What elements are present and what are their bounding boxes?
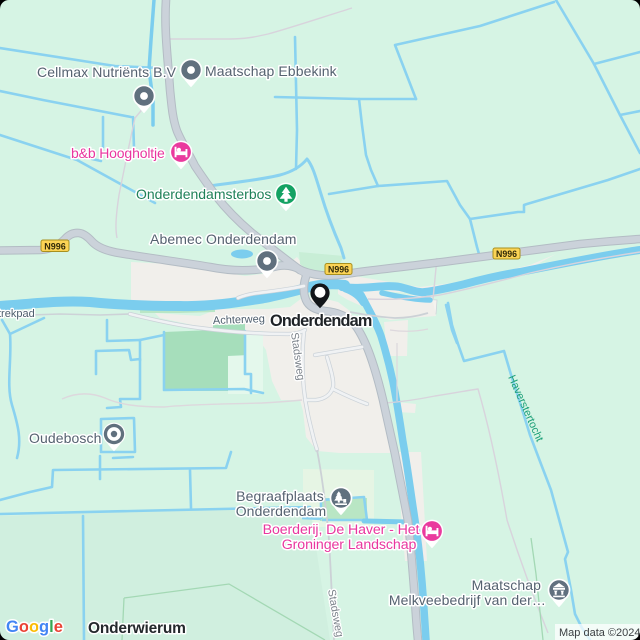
svg-text:Maatschap: Maatschap xyxy=(472,577,541,593)
svg-text:Abemec Onderdendam: Abemec Onderdendam xyxy=(150,231,297,247)
svg-text:Groninger Landschap: Groninger Landschap xyxy=(282,537,417,553)
svg-text:Onderdendam: Onderdendam xyxy=(236,503,327,519)
svg-text:b&b Hoogholtje: b&b Hoogholtje xyxy=(71,145,165,161)
svg-text:N996: N996 xyxy=(496,249,517,259)
svg-text:Cellmax Nutriënts B.V: Cellmax Nutriënts B.V xyxy=(37,64,177,80)
svg-text:Maatschap Ebbekink: Maatschap Ebbekink xyxy=(205,63,338,79)
svg-text:Begraafplaats: Begraafplaats xyxy=(236,488,324,504)
svg-text:N996: N996 xyxy=(328,264,349,274)
svg-text:Google: Google xyxy=(6,618,63,636)
svg-text:trekpad: trekpad xyxy=(0,308,35,320)
svg-text:Map data ©2024: Map data ©2024 xyxy=(559,627,640,639)
svg-text:Achterweg: Achterweg xyxy=(213,313,265,327)
svg-text:N996: N996 xyxy=(44,241,66,251)
svg-text:Boerderij, De Haver - Het: Boerderij, De Haver - Het xyxy=(263,522,420,538)
svg-text:Onderdendam: Onderdendam xyxy=(270,312,372,330)
svg-text:Oudebosch: Oudebosch xyxy=(29,430,102,446)
svg-text:Melkveebedrijf van der…: Melkveebedrijf van der… xyxy=(389,592,546,608)
svg-text:Onderwierum: Onderwierum xyxy=(88,620,186,637)
svg-text:Onderdendamsterbos: Onderdendamsterbos xyxy=(136,186,271,202)
